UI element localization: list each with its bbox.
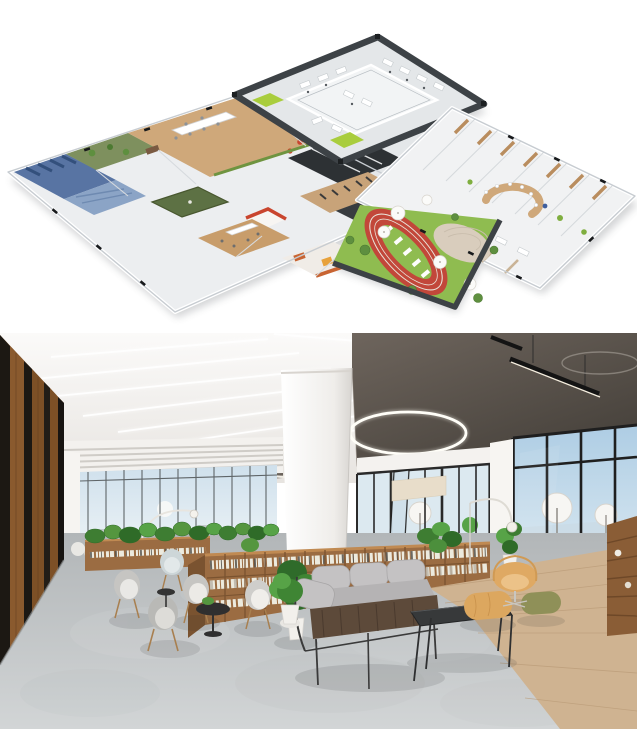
table-plant bbox=[202, 597, 214, 605]
interior-render bbox=[0, 333, 637, 729]
interior-panel bbox=[0, 333, 637, 729]
floorplan-panel bbox=[0, 0, 637, 333]
floorplan-illustration bbox=[0, 0, 637, 333]
page bbox=[0, 0, 637, 729]
wood-slat-shelf-right bbox=[607, 516, 637, 636]
pouf-olive bbox=[520, 591, 561, 616]
